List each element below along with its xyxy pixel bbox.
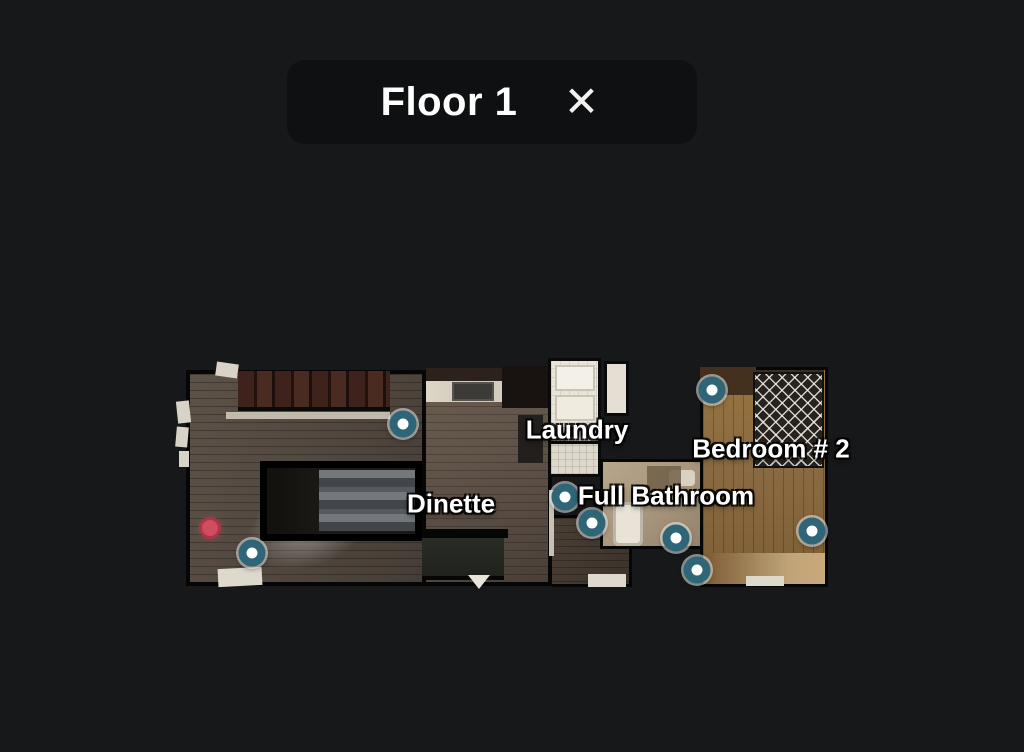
wall-segment [422, 529, 508, 538]
pano-marker-5[interactable] [579, 510, 606, 537]
pano-marker-6[interactable] [663, 525, 690, 552]
door-marker [468, 575, 490, 589]
pano-marker-4[interactable] [552, 484, 579, 511]
laundry-tile-floor [548, 444, 601, 477]
kitchen-corner [502, 366, 550, 408]
room-label-full-bathroom: Full Bathroom [578, 481, 754, 512]
pano-marker-3[interactable] [699, 377, 726, 404]
room-label-bedroom-2: Bedroom # 2 [692, 434, 850, 465]
close-icon: ✕ [564, 81, 599, 123]
room-label-laundry: Laundry [526, 415, 629, 446]
current-position-marker[interactable] [199, 517, 221, 539]
window-frame [176, 400, 191, 423]
kitchen-upper-cabinets [426, 368, 514, 381]
bedroom-mat [746, 576, 784, 586]
room-label-dinette: Dinette [407, 489, 495, 520]
pano-marker-8[interactable] [799, 518, 826, 545]
window-frame [179, 451, 189, 467]
floorplan[interactable] [180, 355, 840, 595]
pano-marker-2[interactable] [239, 540, 266, 567]
entry-mat [218, 567, 263, 587]
cabinet-row [238, 371, 390, 411]
window-frame [175, 427, 189, 448]
floor-title-bar: Floor 1 ✕ [287, 60, 697, 144]
hall-mat [588, 574, 626, 587]
open-to-below [422, 538, 504, 580]
laundry-closet [604, 361, 629, 416]
cabinet-trim [226, 412, 390, 419]
floor-title: Floor 1 [381, 80, 518, 125]
pano-marker-1[interactable] [390, 411, 417, 438]
stove [452, 382, 494, 401]
close-button[interactable]: ✕ [559, 80, 603, 124]
stairwell [260, 461, 422, 541]
stairwell-shadow [267, 468, 327, 534]
pano-marker-7[interactable] [684, 557, 711, 584]
wall-fragment [215, 362, 239, 379]
washer [555, 365, 595, 391]
stairs [319, 470, 415, 531]
